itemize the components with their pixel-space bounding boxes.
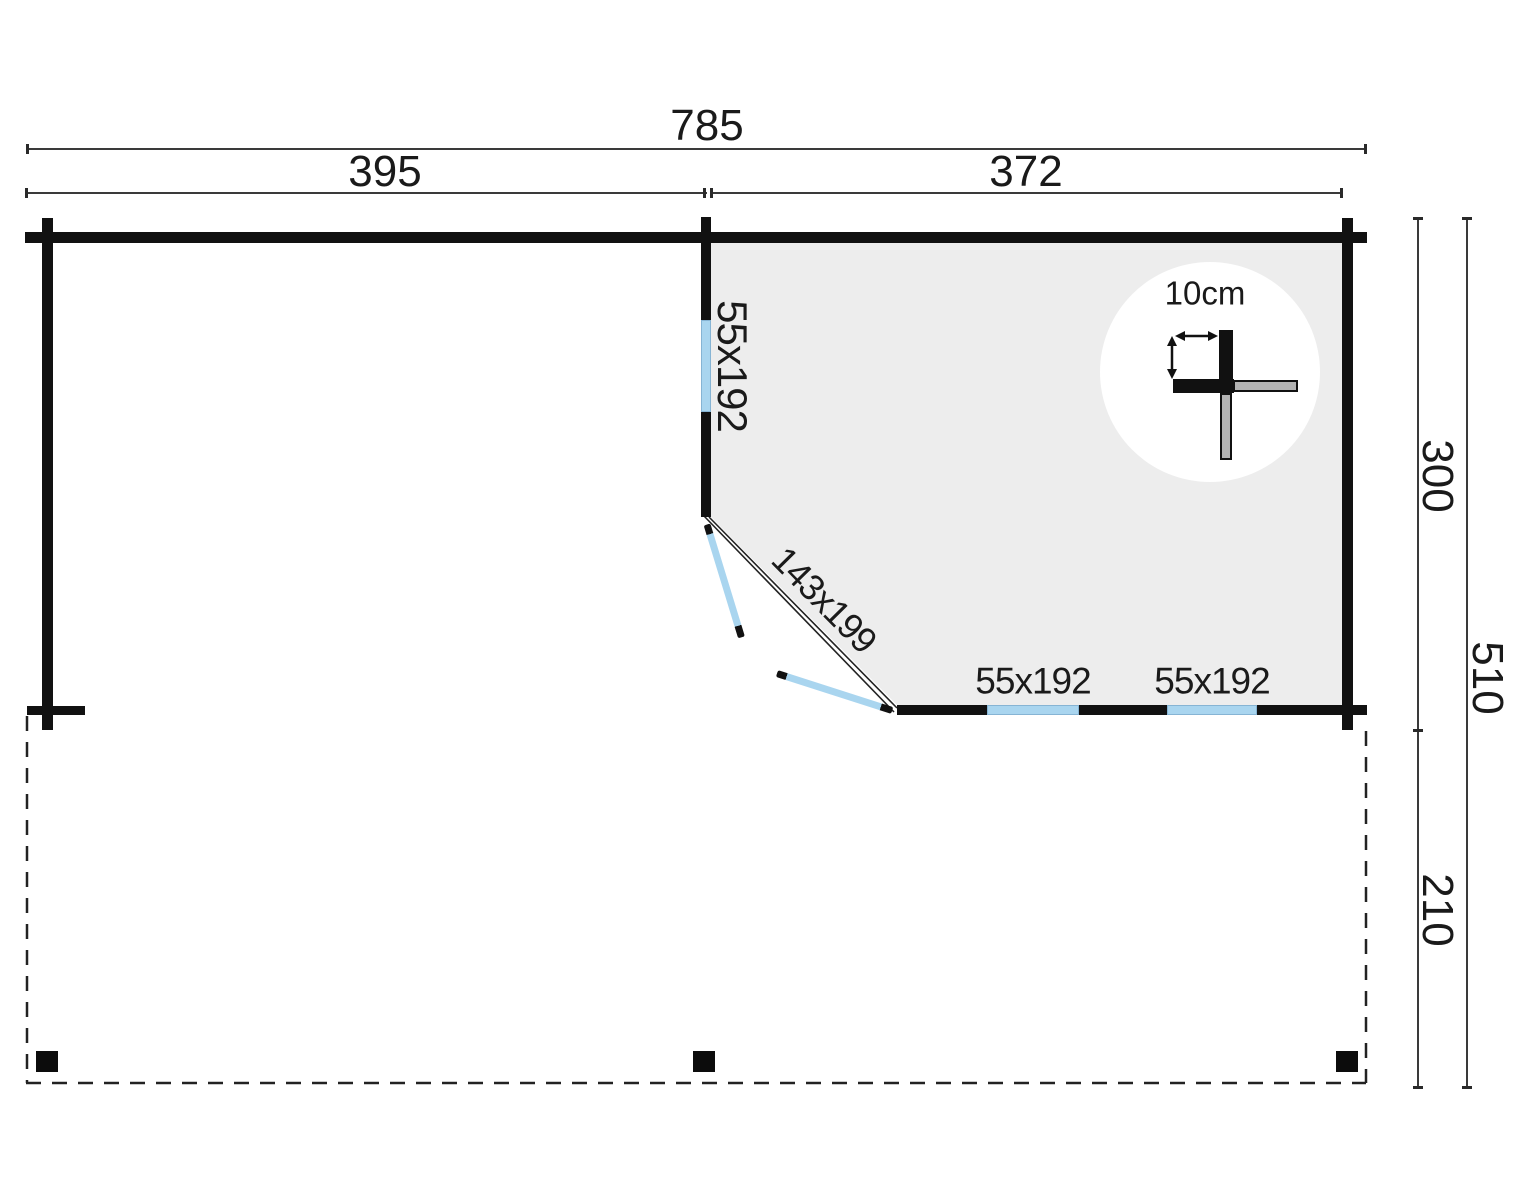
wall-left [42,218,53,730]
wall-front-segment-3 [1257,705,1367,715]
detail-log-gray-vertical [1220,393,1232,460]
dim-tick [1462,217,1472,220]
dim-tick [25,188,28,198]
dim-label-right-section: 372 [989,150,1062,194]
dim-tick [1413,217,1423,220]
dim-label-left-section: 395 [348,150,421,194]
window-front-1 [987,705,1079,715]
wall-front-segment-2 [1079,705,1167,715]
dim-label-terrace-depth: 210 [1415,873,1459,946]
dim-label-total-depth: 510 [1465,641,1509,714]
terrace-post-right [1336,1051,1358,1072]
dim-label-total-width: 785 [670,104,743,148]
detail-height-arrow [1167,336,1177,379]
detail-width-arrow [1175,331,1218,341]
wall-front-segment-1 [897,705,987,715]
dim-tick [1413,729,1423,732]
overlay-lines [0,0,1536,1193]
detail-log-black-horizontal [1173,379,1234,393]
dim-tick [26,144,29,154]
wall-top [25,232,1367,243]
wall-left-foot [27,706,85,715]
terrace-dashed-outline [26,716,1366,1083]
floorplan-canvas: 785 395 372 300 210 510 55x192 55x192 55… [0,0,1536,1193]
terrace-post-middle [693,1051,715,1072]
window-front-1-label: 55x192 [975,663,1090,700]
dim-line-cabin-terrace-depth [1417,218,1419,1088]
dim-tick [1413,1086,1423,1089]
dim-tick [710,188,713,198]
dim-tick [703,188,706,198]
dim-tick [1462,1086,1472,1089]
dim-tick [1340,188,1343,198]
wall-right [1342,218,1353,730]
wall-thickness-label: 10cm [1165,277,1246,310]
detail-log-gray-horizontal [1233,380,1298,392]
dim-tick [1364,144,1367,154]
window-side-label: 55x192 [711,300,753,432]
window-front-2-label: 55x192 [1154,663,1269,700]
window-front-2 [1167,705,1257,715]
terrace-post-left [36,1051,58,1072]
dim-label-cabin-depth: 300 [1415,439,1459,512]
